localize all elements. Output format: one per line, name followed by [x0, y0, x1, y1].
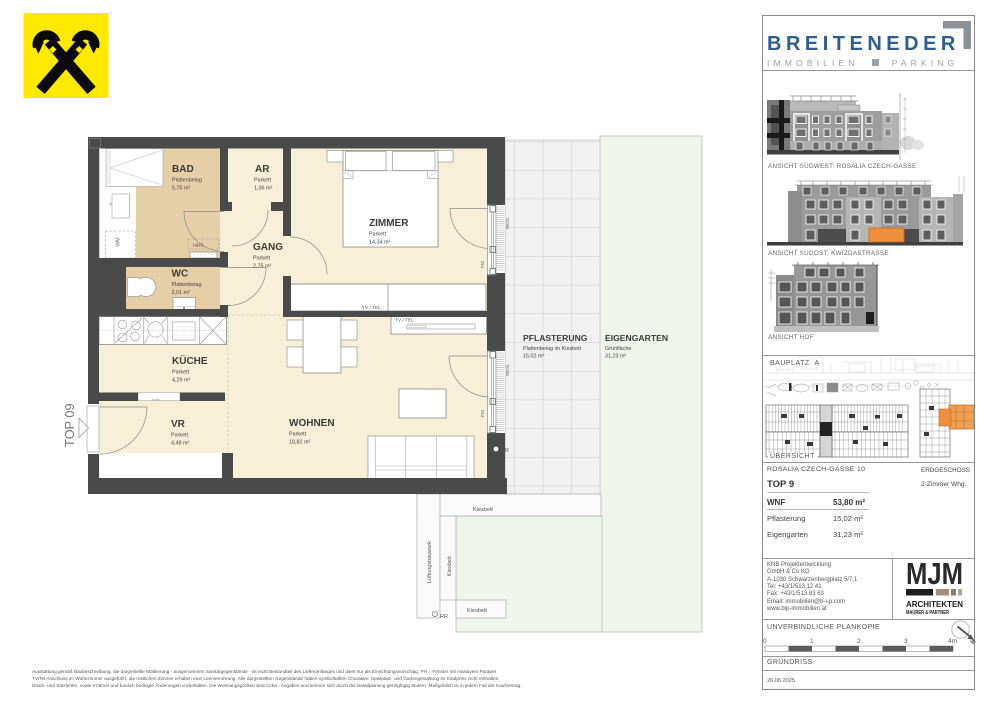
svg-text:2,75 m²: 2,75 m²: [253, 264, 271, 270]
svg-text:Parkett: Parkett: [254, 178, 272, 184]
svg-text:PFLASTERUNG: PFLASTERUNG: [523, 333, 588, 343]
svg-text:1: 1: [810, 638, 814, 645]
svg-text:RR: RR: [501, 448, 509, 454]
svg-text:GANG: GANG: [253, 242, 283, 253]
svg-text:REOL: REOL: [505, 216, 510, 229]
svg-text:2: 2: [857, 638, 861, 645]
svg-text:Kiesbett: Kiesbett: [467, 608, 487, 614]
svg-text:RR: RR: [440, 614, 448, 620]
svg-text:WOHNEN: WOHNEN: [289, 418, 335, 429]
svg-text:MAURER & PARTNER: MAURER & PARTNER: [906, 610, 949, 615]
svg-text:Grünfläche: Grünfläche: [605, 346, 631, 352]
svg-text:Lüftungsbauwerk: Lüftungsbauwerk: [427, 541, 433, 583]
svg-text:4,48 m²: 4,48 m²: [171, 441, 189, 447]
svg-text:KÜCHE: KÜCHE: [172, 354, 208, 367]
svg-text:TV / TEL: TV / TEL: [362, 305, 381, 311]
svg-text:MJM: MJM: [906, 559, 963, 591]
svg-text:TOP 09: TOP 09: [62, 403, 77, 447]
svg-text:0: 0: [763, 638, 767, 645]
svg-text:Kiesbett: Kiesbett: [473, 507, 493, 513]
svg-text:ARCHITEKTEN: ARCHITEKTEN: [906, 600, 963, 609]
svg-text:Parkett: Parkett: [253, 256, 271, 262]
svg-text:AR: AR: [255, 164, 270, 175]
svg-text:31,23 m²: 31,23 m²: [605, 354, 626, 360]
svg-text:Parkett: Parkett: [171, 433, 189, 439]
svg-text:REOL: REOL: [505, 363, 510, 376]
svg-text:EIGENGARTEN: EIGENGARTEN: [605, 333, 668, 343]
svg-text:15,02 m²: 15,02 m²: [523, 354, 544, 360]
svg-text:4m: 4m: [948, 638, 957, 645]
svg-text:4,29 m²: 4,29 m²: [172, 378, 190, 384]
svg-text:14,34 m²: 14,34 m²: [369, 240, 390, 246]
svg-text:TV / TEL: TV / TEL: [395, 318, 414, 324]
svg-text:5,75 m²: 5,75 m²: [172, 186, 190, 192]
svg-text:Kiesbett: Kiesbett: [447, 556, 453, 576]
svg-text:VR: VR: [171, 419, 186, 430]
svg-text:Parkett: Parkett: [289, 432, 307, 438]
svg-text:WC: WC: [172, 269, 189, 280]
svg-text:WM: WM: [116, 237, 122, 246]
svg-text:1,36 m²: 1,36 m²: [254, 186, 272, 192]
svg-text:Plattenbelag im Kiesbett: Plattenbelag im Kiesbett: [523, 346, 582, 352]
svg-text:ZIMMER: ZIMMER: [369, 218, 409, 229]
svg-text:Plattenbelag: Plattenbelag: [172, 178, 202, 184]
svg-text:Parkett: Parkett: [369, 232, 387, 238]
svg-text:FIX: FIX: [480, 261, 485, 268]
svg-text:3: 3: [904, 638, 908, 645]
svg-text:HHK: HHK: [193, 243, 204, 249]
svg-text:HöHE: HöHE: [152, 398, 160, 402]
svg-text:Plattenbelag: Plattenbelag: [172, 282, 202, 288]
svg-text:FIX: FIX: [480, 410, 485, 417]
svg-text:BAD: BAD: [172, 164, 194, 175]
svg-text:18,82 m²: 18,82 m²: [289, 440, 310, 446]
svg-text:Parkett: Parkett: [172, 370, 190, 376]
svg-text:2,01 m²: 2,01 m²: [172, 290, 190, 296]
